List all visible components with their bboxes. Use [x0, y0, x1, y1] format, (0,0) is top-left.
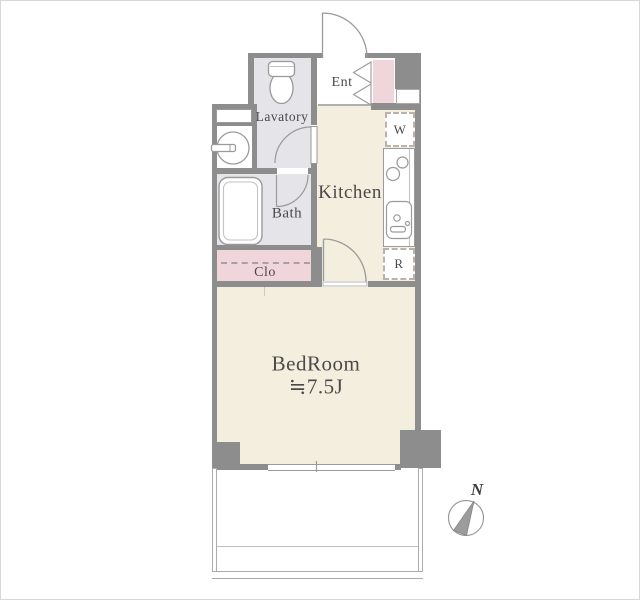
- entrance-step-line: [318, 104, 371, 106]
- entrance-door-arc: [323, 13, 368, 58]
- balcony-rail-bottom: [212, 571, 423, 579]
- wall-center-tick: [264, 287, 265, 296]
- closet-hanger-line: [221, 262, 310, 264]
- washer-label: W: [394, 122, 407, 138]
- balcony-inner-line: [217, 546, 418, 547]
- kitchen-counter: [383, 148, 415, 247]
- floor-plan: Lavatory Bath Clo Ent Kitchen BedRoom ≒7…: [0, 0, 640, 600]
- washbasin-icon: [212, 132, 250, 164]
- balcony-rail-left: [212, 468, 217, 578]
- wall-entrance-bottom: [371, 103, 421, 110]
- basin-counter-box: [216, 109, 252, 123]
- pillar-top-right: [395, 58, 421, 89]
- shoe-cabinet: [373, 60, 394, 104]
- entrance-door: [323, 13, 368, 58]
- wall-lavatory-right-upper: [311, 53, 317, 125]
- wall-left-outer: [212, 104, 217, 470]
- bedroom-size: ≒7.5J: [272, 375, 361, 398]
- wall-bedroom-top-left: [212, 281, 322, 287]
- lavatory-label: Lavatory: [256, 109, 309, 125]
- compass-icon: [449, 501, 484, 536]
- shoe-cabinet-door-icon: [354, 62, 372, 105]
- bath-label: Bath: [272, 206, 302, 223]
- compass-north-label: N: [471, 480, 483, 500]
- bedroom-name: BedRoom: [272, 352, 361, 375]
- entrance-ledge: [396, 89, 420, 104]
- wall-basin-divider: [214, 123, 252, 126]
- balcony-rail-right: [418, 468, 423, 578]
- wall-lavatory-right-lower: [311, 163, 317, 250]
- wall-lavatory-bottom-left: [212, 168, 277, 174]
- bedroom-window: [268, 464, 395, 471]
- wall-bedroom-top-right: [368, 281, 421, 287]
- refrigerator-label: R: [394, 256, 403, 272]
- wall-bath-bottom: [212, 245, 317, 250]
- entrance-label: Ent: [332, 75, 353, 91]
- wall-lavatory-left: [248, 53, 254, 106]
- wall-bottom-stub-left: [212, 464, 268, 470]
- kitchen-label: Kitchen: [318, 182, 382, 204]
- bedroom-label: BedRoom ≒7.5J: [272, 352, 361, 397]
- pillar-bottom-right: [400, 430, 441, 468]
- closet-label: Clo: [254, 265, 276, 281]
- bedroom-door-threshold: [323, 282, 367, 286]
